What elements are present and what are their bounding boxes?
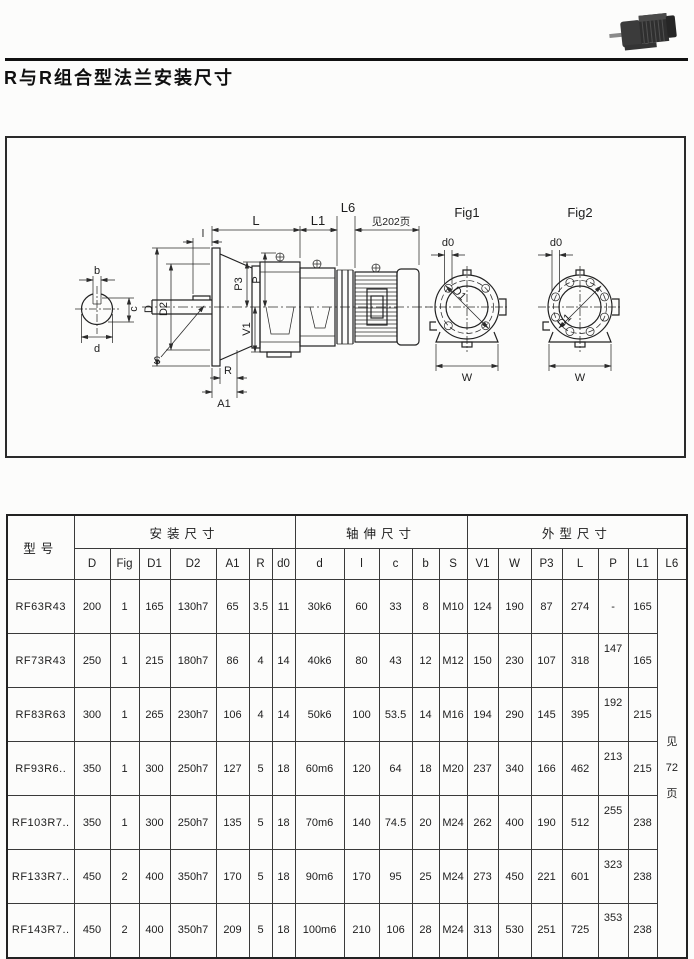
value-cell: 124 <box>467 580 498 634</box>
column-header: P <box>598 549 628 580</box>
cell-value: 274 <box>571 601 589 613</box>
value-cell: 14 <box>272 688 295 742</box>
model-column-header: 型号 <box>7 515 74 580</box>
value-cell: 2 <box>110 850 139 904</box>
value-cell: 4 <box>249 688 272 742</box>
value-cell: 215 <box>628 688 657 742</box>
value-cell: 140 <box>344 796 379 850</box>
value-cell: 450 <box>498 850 531 904</box>
table-row: RF133R7..4502400350h717051890m61709525M2… <box>7 850 687 904</box>
value-cell: 238 <box>628 796 657 850</box>
cell-value: 262 <box>473 817 491 829</box>
column-header: L6 <box>657 549 687 580</box>
value-cell: 725 <box>562 904 598 958</box>
value-cell: 165 <box>139 580 170 634</box>
value-cell: M24 <box>439 904 467 958</box>
cell-value: 8 <box>422 601 428 613</box>
value-cell: 74.5 <box>379 796 412 850</box>
header-rule <box>5 58 688 61</box>
cell-value: 95 <box>389 871 401 883</box>
l6-note-line: 72 <box>658 755 687 781</box>
value-cell: 50k6 <box>295 688 344 742</box>
cell-value: 120 <box>352 763 370 775</box>
cell-value: 4 <box>257 709 263 721</box>
value-cell: 215 <box>628 742 657 796</box>
cell-value: 170 <box>223 871 241 883</box>
value-cell: 18 <box>272 850 295 904</box>
value-cell: 318 <box>562 634 598 688</box>
dim-label-V1: V1 <box>241 322 253 335</box>
cell-value: 20 <box>419 817 431 829</box>
cell-value: 313 <box>473 924 491 936</box>
dim-label-P: P <box>251 276 263 283</box>
cell-value: M16 <box>442 709 463 721</box>
value-cell: 262 <box>467 796 498 850</box>
cell-value: 170 <box>352 871 370 883</box>
cell-value: 221 <box>537 871 555 883</box>
value-cell: 512 <box>562 796 598 850</box>
value-cell: 462 <box>562 742 598 796</box>
value-cell: 200 <box>74 580 110 634</box>
gearmotor-photo <box>607 5 689 55</box>
cell-value: 150 <box>473 655 491 667</box>
value-cell: 86 <box>216 634 249 688</box>
cell-value: 238 <box>633 817 651 829</box>
value-cell: 65 <box>216 580 249 634</box>
dim-label-b: b <box>94 265 100 277</box>
value-cell: 130h7 <box>170 580 216 634</box>
cell-value: 60 <box>355 601 367 613</box>
value-cell: 192 <box>598 688 628 742</box>
model-cell: RF103R7.. <box>7 796 74 850</box>
dim-label-S: S <box>153 355 160 367</box>
side-view <box>142 248 432 366</box>
cell-value: 147 <box>604 643 622 655</box>
cell-value: 300 <box>83 709 101 721</box>
group-header-row: 型号 安装尺寸 轴伸尺寸 外型尺寸 <box>7 515 687 549</box>
cell-value: M12 <box>442 655 463 667</box>
value-cell: 120 <box>344 742 379 796</box>
value-cell: 40k6 <box>295 634 344 688</box>
value-cell: M20 <box>439 742 467 796</box>
cell-value: 18 <box>277 763 289 775</box>
value-cell: 274 <box>562 580 598 634</box>
cell-value: 1 <box>121 601 127 613</box>
cell-value: 5 <box>257 817 263 829</box>
value-cell: 53.5 <box>379 688 412 742</box>
value-cell: 350h7 <box>170 904 216 958</box>
cell-value: 725 <box>571 924 589 936</box>
cell-value: 230 <box>505 655 523 667</box>
cell-value: 165 <box>633 655 651 667</box>
cell-value: 192 <box>604 697 622 709</box>
value-cell: - <box>598 580 628 634</box>
value-cell: 350 <box>74 796 110 850</box>
value-cell: 60m6 <box>295 742 344 796</box>
cell-value: 250h7 <box>178 763 209 775</box>
cell-value: 130h7 <box>178 601 209 613</box>
cell-value: 5 <box>257 763 263 775</box>
fig1-dim-label-D1: D1 <box>450 285 468 303</box>
dim-label-P3: P3 <box>233 277 245 290</box>
column-header: D1 <box>139 549 170 580</box>
column-header: R <box>249 549 272 580</box>
cell-value: 25 <box>419 871 431 883</box>
value-cell: 90m6 <box>295 850 344 904</box>
cell-value: M24 <box>442 924 463 936</box>
cell-value: 14 <box>277 655 289 667</box>
column-header: P3 <box>531 549 562 580</box>
value-cell: 33 <box>379 580 412 634</box>
cell-value: 106 <box>386 924 404 936</box>
value-cell: 238 <box>628 904 657 958</box>
fig1-flange-view <box>425 250 509 371</box>
column-header: V1 <box>467 549 498 580</box>
cell-value: 60m6 <box>306 763 334 775</box>
cell-value: 124 <box>473 601 491 613</box>
value-cell: 165 <box>628 634 657 688</box>
cell-value: 318 <box>571 655 589 667</box>
cell-value: 12 <box>419 655 431 667</box>
value-cell: 300 <box>139 742 170 796</box>
dim-label-L1: L1 <box>311 213 325 228</box>
dim-label-A1: A1 <box>217 398 230 410</box>
dim-label-D2: D2 <box>158 302 170 316</box>
value-cell: 530 <box>498 904 531 958</box>
value-cell: 601 <box>562 850 598 904</box>
value-cell: 100m6 <box>295 904 344 958</box>
value-cell: 221 <box>531 850 562 904</box>
model-cell: RF73R43 <box>7 634 74 688</box>
cell-value: 450 <box>83 871 101 883</box>
value-cell: 180h7 <box>170 634 216 688</box>
cell-value: 127 <box>223 763 241 775</box>
cell-value: 255 <box>604 805 622 817</box>
value-cell: M24 <box>439 850 467 904</box>
cell-value: 215 <box>145 655 163 667</box>
cell-value: 209 <box>223 924 241 936</box>
value-cell: 1 <box>110 742 139 796</box>
value-cell: 170 <box>216 850 249 904</box>
value-cell: 43 <box>379 634 412 688</box>
value-cell: 255 <box>598 796 628 850</box>
cell-value: 2 <box>121 924 127 936</box>
fig2-caption: Fig2 <box>567 205 592 220</box>
cell-value: 4 <box>257 655 263 667</box>
group-header-mounting: 安装尺寸 <box>74 515 295 549</box>
cell-value: 140 <box>352 817 370 829</box>
value-cell: 313 <box>467 904 498 958</box>
value-cell: 147 <box>598 634 628 688</box>
cell-value: 238 <box>633 924 651 936</box>
cell-value: 18 <box>277 871 289 883</box>
value-cell: 238 <box>628 850 657 904</box>
shaft-cross-section <box>75 276 134 343</box>
value-cell: 194 <box>467 688 498 742</box>
value-cell: 353 <box>598 904 628 958</box>
dim-label-l: l <box>202 228 204 240</box>
column-header: L1 <box>628 549 657 580</box>
model-cell: RF143R7.. <box>7 904 74 958</box>
value-cell: 273 <box>467 850 498 904</box>
column-header: b <box>412 549 439 580</box>
cell-value: 250 <box>83 655 101 667</box>
value-cell: 80 <box>344 634 379 688</box>
cell-value: 251 <box>537 924 555 936</box>
cell-value: 350h7 <box>178 924 209 936</box>
model-cell: RF83R63 <box>7 688 74 742</box>
fig1-dim-label-W: W <box>462 372 473 384</box>
value-cell: 18 <box>412 742 439 796</box>
value-cell: 237 <box>467 742 498 796</box>
cell-value: M24 <box>442 817 463 829</box>
dimension-table: 型号 安装尺寸 轴伸尺寸 外型尺寸 D Fig D1 D2 A1 R d0 d … <box>6 514 688 959</box>
value-cell: 87 <box>531 580 562 634</box>
cell-value: 395 <box>571 709 589 721</box>
value-cell: 64 <box>379 742 412 796</box>
model-cell: RF63R43 <box>7 580 74 634</box>
cell-value: 273 <box>473 871 491 883</box>
value-cell: 340 <box>498 742 531 796</box>
cell-value: 18 <box>277 817 289 829</box>
table-row: RF103R7..3501300250h713551870m614074.520… <box>7 796 687 850</box>
cell-value: 145 <box>537 709 555 721</box>
value-cell: 190 <box>498 580 531 634</box>
cell-value: 30k6 <box>308 601 332 613</box>
cell-value: 353 <box>604 912 622 924</box>
cell-value: 290 <box>505 709 523 721</box>
cell-value: 100 <box>352 709 370 721</box>
cell-value: 215 <box>633 763 651 775</box>
cell-value: 1 <box>121 709 127 721</box>
value-cell: M12 <box>439 634 467 688</box>
column-header: D <box>74 549 110 580</box>
cell-value: M10 <box>442 601 463 613</box>
value-cell: 323 <box>598 850 628 904</box>
cell-value: 194 <box>473 709 491 721</box>
column-header: A1 <box>216 549 249 580</box>
dim-label-L6: L6 <box>341 200 355 215</box>
value-cell: 300 <box>139 796 170 850</box>
column-header: W <box>498 549 531 580</box>
group-header-outline: 外型尺寸 <box>467 515 687 549</box>
value-cell: 5 <box>249 742 272 796</box>
cell-value: 64 <box>389 763 401 775</box>
table-row: RF63R432001165130h7653.51130k660338M1012… <box>7 580 687 634</box>
cell-value: 135 <box>223 817 241 829</box>
value-cell: 18 <box>272 796 295 850</box>
cell-value: 5 <box>257 871 263 883</box>
cell-value: 230h7 <box>178 709 209 721</box>
cell-value: 100m6 <box>303 924 337 936</box>
cell-value: 166 <box>537 763 555 775</box>
cell-value: 323 <box>604 859 622 871</box>
cell-value: 87 <box>540 601 552 613</box>
cell-value: 400 <box>145 871 163 883</box>
cell-value: 180h7 <box>178 655 209 667</box>
cell-value: 213 <box>604 751 622 763</box>
cell-value: 90m6 <box>306 871 334 883</box>
value-cell: 14 <box>412 688 439 742</box>
value-cell: 3.5 <box>249 580 272 634</box>
value-cell: 20 <box>412 796 439 850</box>
column-header: l <box>344 549 379 580</box>
cell-value: 14 <box>419 709 431 721</box>
value-cell: 250h7 <box>170 796 216 850</box>
cell-value: 190 <box>505 601 523 613</box>
value-cell: 400 <box>139 850 170 904</box>
cell-value: 1 <box>121 655 127 667</box>
column-header: S <box>439 549 467 580</box>
cell-value: - <box>611 601 615 613</box>
dim-label-D: D <box>143 305 155 313</box>
l6-note-line: 见 <box>658 729 687 755</box>
value-cell: 395 <box>562 688 598 742</box>
cell-value: 3.5 <box>253 601 268 613</box>
value-cell: 170 <box>344 850 379 904</box>
value-cell: 251 <box>531 904 562 958</box>
cell-value: 350 <box>83 763 101 775</box>
cell-value: 238 <box>633 871 651 883</box>
value-cell: 4 <box>249 634 272 688</box>
value-cell: 107 <box>531 634 562 688</box>
technical-drawing: b c d <box>7 138 684 456</box>
dim-label-R: R <box>224 365 232 377</box>
fig2-flange-view <box>538 250 622 371</box>
cell-value: 450 <box>505 871 523 883</box>
value-cell: 230h7 <box>170 688 216 742</box>
gearmotor-photo-art <box>607 5 689 55</box>
cell-value: 1 <box>121 763 127 775</box>
column-header: d <box>295 549 344 580</box>
cell-value: 265 <box>145 709 163 721</box>
page-title: R与R组合型法兰安装尺寸 <box>4 64 234 90</box>
cell-value: 237 <box>473 763 491 775</box>
value-cell: 265 <box>139 688 170 742</box>
value-cell: 166 <box>531 742 562 796</box>
value-cell: 135 <box>216 796 249 850</box>
value-cell: 350h7 <box>170 850 216 904</box>
column-header: d0 <box>272 549 295 580</box>
spec-table-body: RF63R432001165130h7653.51130k660338M1012… <box>7 580 687 958</box>
dim-label-d: d <box>94 343 100 355</box>
value-cell: 30k6 <box>295 580 344 634</box>
value-cell: 230 <box>498 634 531 688</box>
value-cell: 106 <box>216 688 249 742</box>
value-cell: 12 <box>412 634 439 688</box>
model-cell: RF133R7.. <box>7 850 74 904</box>
cell-value: 86 <box>226 655 238 667</box>
value-cell: 127 <box>216 742 249 796</box>
value-cell: 1 <box>110 634 139 688</box>
cell-value: 11 <box>278 601 289 613</box>
cell-value: 70m6 <box>306 817 334 829</box>
value-cell: 14 <box>272 634 295 688</box>
value-cell: 150 <box>467 634 498 688</box>
value-cell: 25 <box>412 850 439 904</box>
cell-value: 165 <box>145 601 163 613</box>
cell-value: 250h7 <box>178 817 209 829</box>
l6-note-cell: 见72页 <box>657 580 687 958</box>
cell-value: M24 <box>442 871 463 883</box>
cell-value: 33 <box>389 601 401 613</box>
cell-value: 340 <box>505 763 523 775</box>
fig1-caption: Fig1 <box>454 205 479 220</box>
l6-note-line: 页 <box>658 781 687 807</box>
value-cell: 190 <box>531 796 562 850</box>
cell-value: 530 <box>505 924 523 936</box>
cell-value: 215 <box>633 709 651 721</box>
cell-value: 65 <box>226 601 238 613</box>
value-cell: 28 <box>412 904 439 958</box>
dim-label-L: L <box>252 213 259 228</box>
value-cell: 95 <box>379 850 412 904</box>
cell-value: 53.5 <box>385 709 406 721</box>
cell-value: 74.5 <box>385 817 406 829</box>
value-cell: 250 <box>74 634 110 688</box>
cell-value: 210 <box>352 924 370 936</box>
value-cell: 400 <box>498 796 531 850</box>
column-header-row: D Fig D1 D2 A1 R d0 d l c b S V1 W P3 L … <box>7 549 687 580</box>
group-header-shaft: 轴伸尺寸 <box>295 515 467 549</box>
cell-value: 5 <box>257 924 263 936</box>
drawing-panel: b c d <box>5 136 686 458</box>
cell-value: 450 <box>83 924 101 936</box>
catalog-page: R与R组合型法兰安装尺寸 <box>0 0 694 959</box>
cell-value: 40k6 <box>308 655 332 667</box>
value-cell: M24 <box>439 796 467 850</box>
value-cell: 5 <box>249 796 272 850</box>
cell-value: 18 <box>419 763 431 775</box>
value-cell: 2 <box>110 904 139 958</box>
see-page-202-note: 见202页 <box>372 216 411 228</box>
cell-value: 350 <box>83 817 101 829</box>
column-header: c <box>379 549 412 580</box>
cell-value: 300 <box>145 817 163 829</box>
value-cell: 213 <box>598 742 628 796</box>
cell-value: 350h7 <box>178 871 209 883</box>
table-row: RF83R633001265230h710641450k610053.514M1… <box>7 688 687 742</box>
value-cell: 210 <box>344 904 379 958</box>
value-cell: 60 <box>344 580 379 634</box>
value-cell: 1 <box>110 688 139 742</box>
model-cell: RF93R6.. <box>7 742 74 796</box>
column-header: Fig <box>110 549 139 580</box>
value-cell: 450 <box>74 904 110 958</box>
value-cell: 70m6 <box>295 796 344 850</box>
value-cell: 106 <box>379 904 412 958</box>
table-row: RF143R7..4502400350h7209518100m621010628… <box>7 904 687 958</box>
cell-value: 300 <box>145 763 163 775</box>
value-cell: 290 <box>498 688 531 742</box>
value-cell: 1 <box>110 580 139 634</box>
cell-value: 462 <box>571 763 589 775</box>
cell-value: 28 <box>419 924 431 936</box>
value-cell: 209 <box>216 904 249 958</box>
column-header: L <box>562 549 598 580</box>
cell-value: 80 <box>355 655 367 667</box>
cell-value: 1 <box>121 817 127 829</box>
value-cell: 5 <box>249 904 272 958</box>
value-cell: 215 <box>139 634 170 688</box>
cell-value: 107 <box>537 655 555 667</box>
table-row: RF93R6..3501300250h712751860m61206418M20… <box>7 742 687 796</box>
cell-value: 50k6 <box>308 709 332 721</box>
cell-value: 512 <box>571 817 589 829</box>
fig2-dim-label-W: W <box>575 372 586 384</box>
cell-value: 165 <box>633 601 651 613</box>
cell-value: 18 <box>277 924 289 936</box>
